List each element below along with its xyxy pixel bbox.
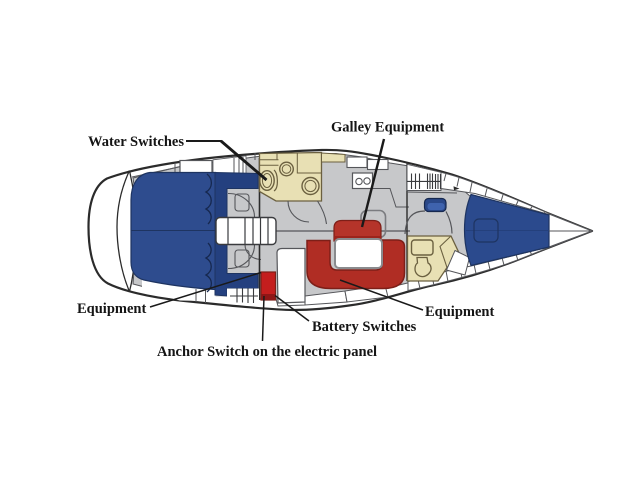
- svg-text:Galley Equipment: Galley Equipment: [331, 120, 444, 136]
- svg-text:Equipment: Equipment: [425, 304, 494, 320]
- svg-text:Equipment: Equipment: [77, 301, 146, 317]
- svg-text:Battery Switches: Battery Switches: [312, 319, 417, 335]
- svg-text:Anchor Switch on the electric: Anchor Switch on the electric panel: [157, 344, 377, 360]
- svg-text:Water Switches: Water Switches: [88, 134, 184, 150]
